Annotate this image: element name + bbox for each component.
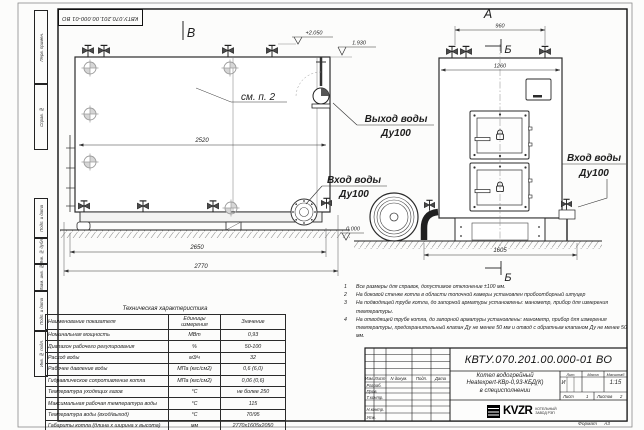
valve-icon xyxy=(460,46,471,57)
margin-label: Подп. и дата xyxy=(39,298,44,325)
water-outlet-dn: Ду100 xyxy=(380,128,411,139)
elbow-pipe xyxy=(424,212,438,240)
table-row: Гидравлическое сопротивление котлаМПа (к… xyxy=(46,375,286,386)
spec-value: 0,06 (0,6) xyxy=(221,375,286,386)
spec-unit: °С xyxy=(169,409,221,420)
note-item: 2На боковой стенке котла в области топоч… xyxy=(340,291,632,299)
dim-2650: 2650 xyxy=(189,245,204,251)
valve-icon xyxy=(424,200,434,210)
dim-1605: 1605 xyxy=(493,248,507,254)
kvzr-logo-icon xyxy=(487,405,500,418)
view-label-a: А xyxy=(483,7,492,21)
spec-name: Расход воды xyxy=(46,352,169,363)
valve-icon xyxy=(266,45,277,56)
note-number: 2 xyxy=(340,291,351,299)
spec-value: не более 250 xyxy=(221,386,286,397)
row-razrab: Разраб. xyxy=(367,383,382,388)
margin-label: Перв. примен. xyxy=(39,33,44,62)
note-item: 4На отводящей трубе котла, до запорной а… xyxy=(340,316,632,341)
spec-table: Техническая характеристика Наименование … xyxy=(45,305,285,430)
spec-name: Габариты котла (длина х ширина х высота) xyxy=(46,421,169,430)
sheets-label: Листов xyxy=(597,394,612,399)
table-row: Рабочее давление водыМПа (кгс/см2)0,6 (6… xyxy=(46,364,286,375)
org-line-2: ЗАВОД РЭП xyxy=(535,411,556,415)
door-handle xyxy=(475,190,490,193)
note-text: На отводящей трубе котла, до запорной ар… xyxy=(356,316,632,341)
title-line-3: в специсполнении xyxy=(452,388,558,395)
drawing-title: Котел водогрейный Heatexpert-КВр-0,93-КБ… xyxy=(452,373,558,395)
col-data: Дата xyxy=(431,376,450,381)
table-row: Габариты котла (длина х ширина х высота)… xyxy=(46,421,286,430)
valve-icon xyxy=(539,46,550,57)
scale-value: 1:15 xyxy=(604,381,627,386)
note-number: 3 xyxy=(340,299,351,315)
sheet-label: Лист xyxy=(563,394,574,399)
scale-header: Масштаб xyxy=(604,373,627,378)
upper-door xyxy=(470,111,532,159)
section-label-b-top: Б xyxy=(504,44,511,56)
spec-unit: МПа (кгс/см2) xyxy=(169,375,221,386)
spec-value: 70/95 xyxy=(221,409,286,420)
note-number: 4 xyxy=(340,316,351,341)
title-line-1: Котел водогрейный xyxy=(452,373,558,380)
spec-value: 0,6 (6,0) xyxy=(221,364,286,375)
format-label: Формат xyxy=(578,422,597,427)
title-block-designation: КВТУ.070.201.00.000-01 ВО xyxy=(452,350,625,369)
dim-2520: 2520 xyxy=(194,138,209,144)
margin-stamp-sprav-no: Справ. № xyxy=(34,84,48,150)
spec-value: 0,93 xyxy=(221,330,286,341)
ground-hatch xyxy=(60,231,350,239)
foot xyxy=(77,222,90,230)
spec-header-row: Наименование показателя Единицы измерени… xyxy=(46,315,286,330)
spec-name: Рабочее давление воды xyxy=(46,364,169,375)
see-note-ref: см. п. 2 xyxy=(241,92,275,103)
table-row: Температура уходящих газов°Сне более 250 xyxy=(46,386,286,397)
margin-label: Справ. № xyxy=(39,107,44,127)
valve-bracket xyxy=(559,210,575,219)
spec-name: Гидравлическое сопротивление котла xyxy=(46,375,169,386)
corner-stamp: КВТУ.070.201.00.000-01 ВО xyxy=(58,9,143,26)
table-row: Диапазон рабочего регулирования%50-100 xyxy=(46,341,286,352)
spec-header: Значение xyxy=(221,315,286,330)
spec-header: Наименование показателя xyxy=(46,315,169,330)
margin-stamp-inv-dubl: Инв. № дубл. xyxy=(34,238,48,264)
ground-hatch xyxy=(354,242,602,250)
valve-icon xyxy=(222,45,233,56)
drawing-sheet: 2520 2650 2770 960 1260 1605 +2.050 xyxy=(0,0,644,430)
lit-value: И xyxy=(560,381,567,386)
row-utv: Утв. xyxy=(367,415,377,420)
margin-label: Взам. инв. № xyxy=(39,264,44,291)
spec-unit: °С xyxy=(169,386,221,397)
spec-name: Номинальная мощность xyxy=(46,330,169,341)
blower-fan xyxy=(370,193,418,241)
col-docum: N докум. xyxy=(386,376,412,381)
elev-zero: 0.000 xyxy=(346,227,361,233)
spec-name: Диапазон рабочего регулирования xyxy=(46,341,169,352)
base-frame xyxy=(80,212,322,222)
lower-door xyxy=(470,163,532,211)
margin-label: Инв. № подл. xyxy=(39,340,44,367)
door-handle xyxy=(475,138,490,141)
spec-header: Единицы измерения xyxy=(169,315,221,330)
spec-name: Температура уходящих газов xyxy=(46,386,169,397)
dim-960: 960 xyxy=(495,24,505,30)
col-list: Лист xyxy=(374,376,386,381)
table-row: Максимальная рабочая температура воды°С1… xyxy=(46,398,286,409)
dim-1260: 1260 xyxy=(494,64,507,70)
title-line-2: Heatexpert-КВр-0,93-КБД(К) xyxy=(452,380,558,387)
elev-top: +2.050 xyxy=(306,31,324,37)
table-row: Температура воды (вход/выход)°С70/95 xyxy=(46,409,286,420)
spec-unit: МВт xyxy=(169,330,221,341)
margin-label: Подп. и дата xyxy=(39,205,44,232)
spec-value: 32 xyxy=(221,352,286,363)
margin-stamp-vzam-inv: Взам. инв. № xyxy=(34,264,48,291)
col-izm: Изм. xyxy=(365,376,374,381)
spec-value: 2770х1605х2050 xyxy=(221,421,286,430)
margin-label: Инв. № дубл. xyxy=(39,238,44,265)
lit-header: Лит. xyxy=(560,373,582,378)
note-text: На подводящей трубе котла, до запорной а… xyxy=(356,299,632,315)
front-view xyxy=(354,44,602,249)
valve-icon xyxy=(98,45,109,56)
table-row: Номинальная мощностьМВт0,93 xyxy=(46,330,286,341)
notes-list: 1Все размеры для справок, допустимое отк… xyxy=(340,283,632,340)
valve-icon xyxy=(561,199,571,209)
sheets-value: 2 xyxy=(620,394,622,399)
organization: KVZR КОТЕЛЬНЫЙ ЗАВОД РЭП xyxy=(487,403,557,419)
valve-icon xyxy=(82,45,93,56)
note-item: 3На подводящей трубе котла, до запорной … xyxy=(340,299,632,315)
valve-icon xyxy=(446,46,457,57)
sheet-value: 1 xyxy=(586,394,588,399)
table-row: Расход водым3/ч32 xyxy=(46,352,286,363)
water-inlet-left-label: Вход воды xyxy=(327,175,382,186)
spec-unit: МПа (кгс/см2) xyxy=(169,364,221,375)
note-text: На боковой стенке котла в области топочн… xyxy=(356,291,632,299)
spec-table-title: Техническая характеристика xyxy=(45,305,285,313)
dim-2770: 2770 xyxy=(193,264,208,270)
note-text: Все размеры для справок, допустимое откл… xyxy=(356,283,632,291)
note-number: 1 xyxy=(340,283,351,291)
spec-unit: % xyxy=(169,341,221,352)
water-inlet-right-label: Вход воды xyxy=(567,153,622,164)
view-label-b: В xyxy=(187,26,195,40)
water-inlet-left-dn: Ду100 xyxy=(338,189,369,200)
note-item: 1Все размеры для справок, допустимое отк… xyxy=(340,283,632,291)
col-podp: Подп. xyxy=(412,376,431,381)
spec-unit: м3/ч xyxy=(169,352,221,363)
spec-unit: °С xyxy=(169,398,221,409)
spec-name: Температура воды (вход/выход) xyxy=(46,409,169,420)
format-value: А3 xyxy=(604,422,610,427)
mass-header: Масса xyxy=(582,373,604,378)
margin-stamp-podp-data-1: Подп. и дата xyxy=(34,198,48,238)
kvzr-logo-text: KVZR xyxy=(503,405,532,417)
spec-value: 50-100 xyxy=(221,341,286,352)
row-nkontr: Н.контр. xyxy=(367,407,385,412)
elev-mid: 1.930 xyxy=(352,41,367,47)
organization-name: КОТЕЛЬНЫЙ ЗАВОД РЭП xyxy=(535,407,556,415)
water-outlet-label: Выход воды xyxy=(365,114,428,125)
water-inlet-right-dn: Ду100 xyxy=(578,168,609,179)
spec-name: Максимальная рабочая температура воды xyxy=(46,398,169,409)
row-tkontr: Т.контр. xyxy=(367,395,384,400)
margin-stamp-perv-primen: Перв. примен. xyxy=(34,10,48,84)
row-prov: Пров. xyxy=(367,389,378,394)
format-note: Формат А3 xyxy=(578,422,610,427)
spec-unit: мм xyxy=(169,421,221,430)
spec-value: 115 xyxy=(221,398,286,409)
corner-designation: КВТУ.070.201.00.000-01 ВО xyxy=(62,15,138,21)
